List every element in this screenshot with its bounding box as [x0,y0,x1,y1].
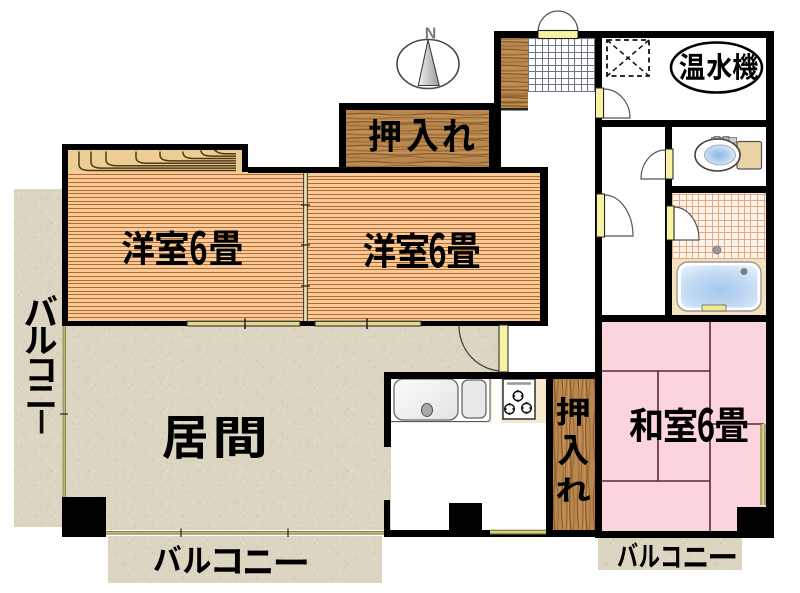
svg-text:N: N [425,26,437,43]
